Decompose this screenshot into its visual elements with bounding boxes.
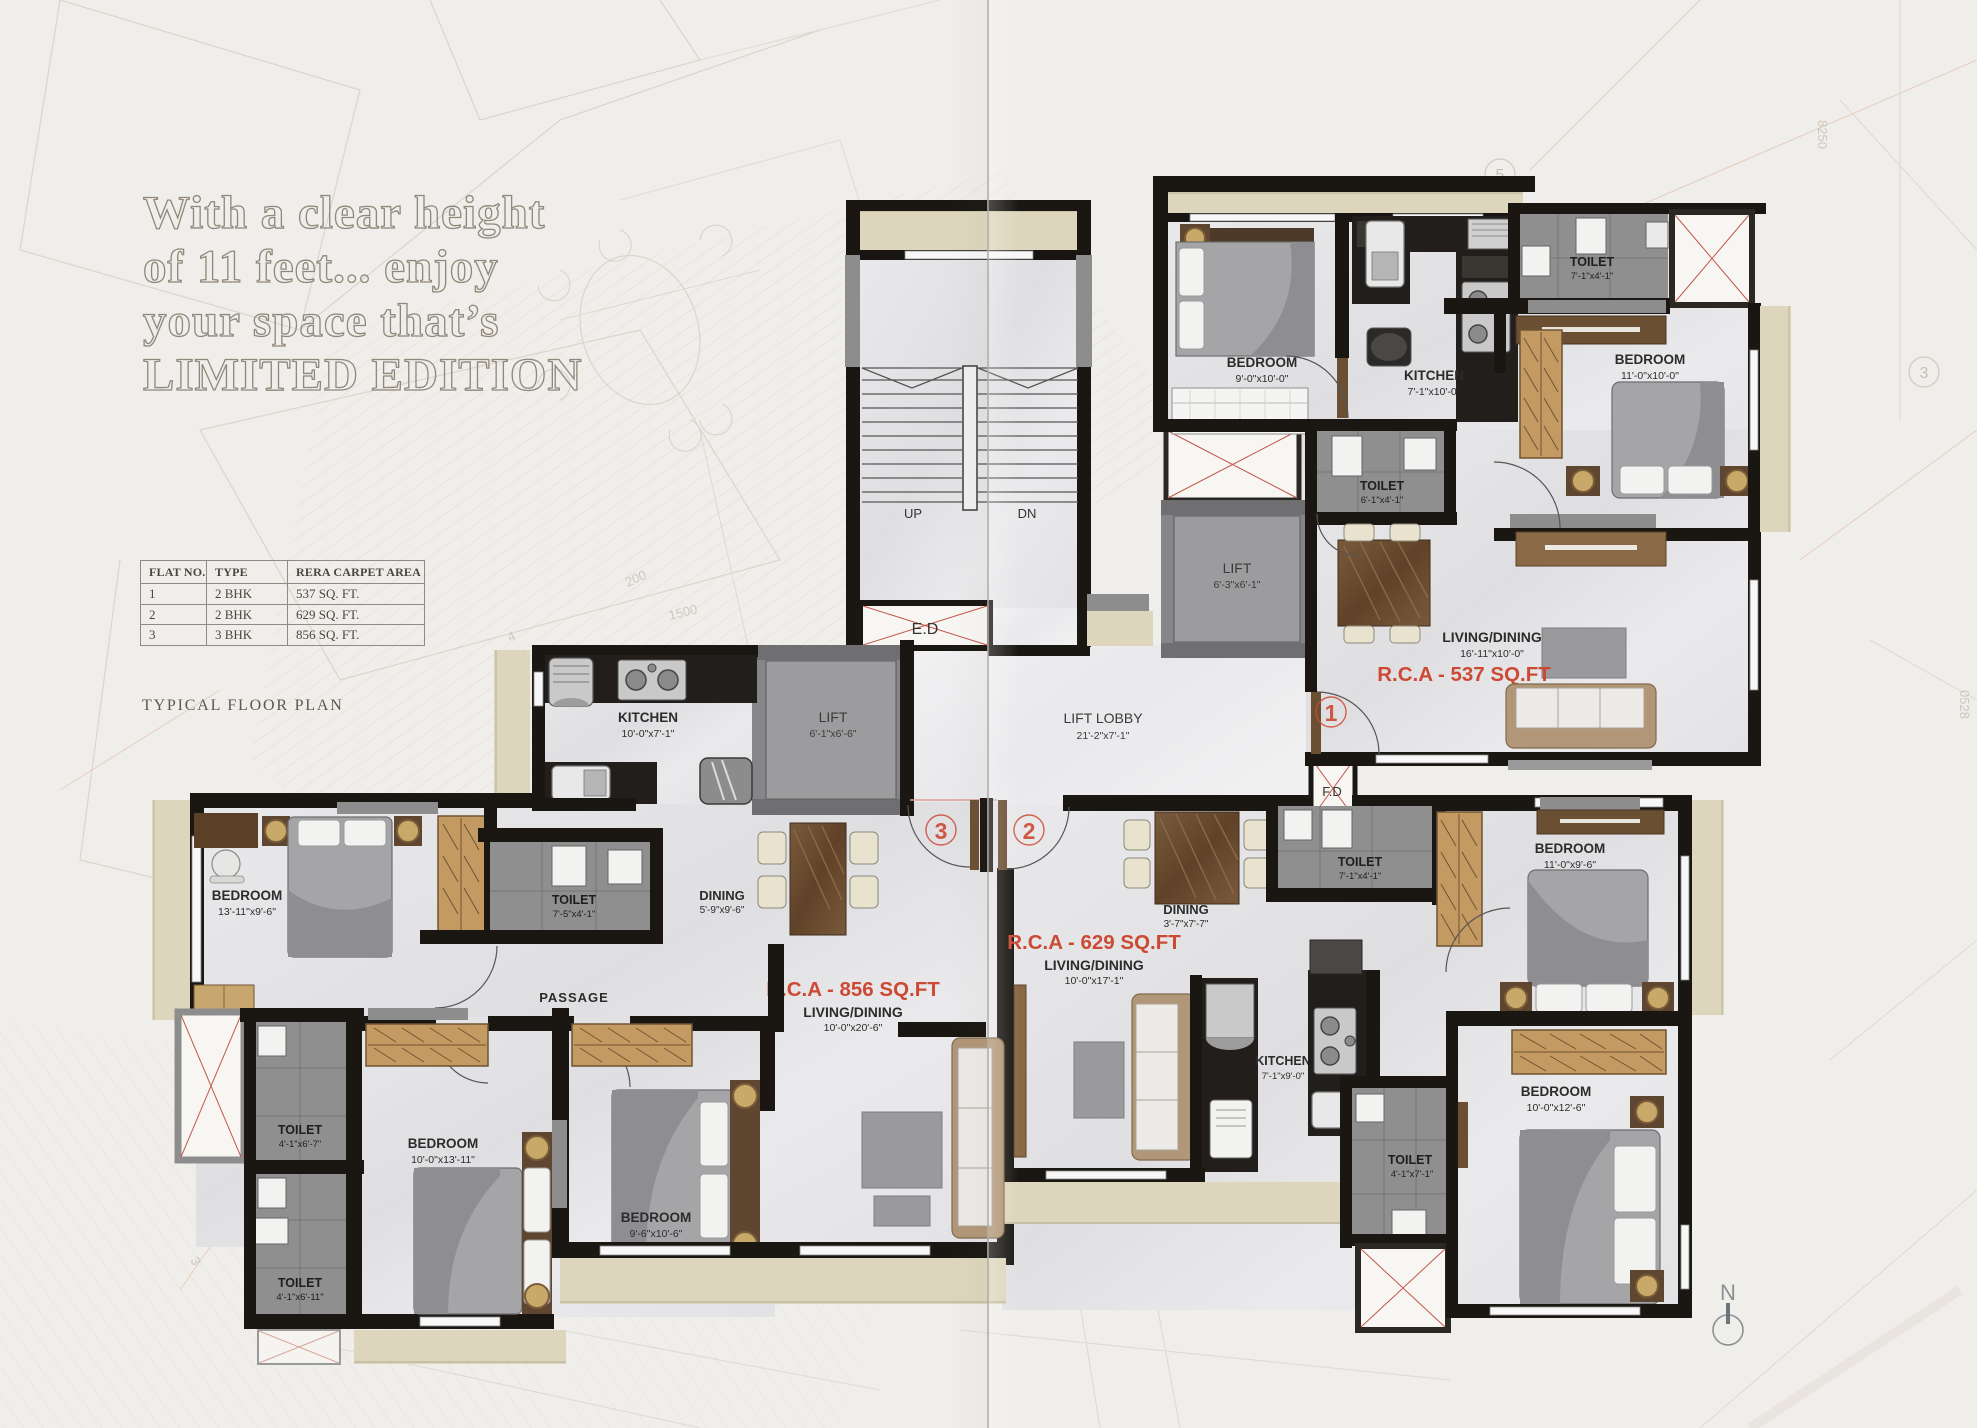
svg-text:KITCHEN: KITCHEN — [1255, 1054, 1311, 1068]
svg-text:13'-11"x9'-6": 13'-11"x9'-6" — [218, 906, 276, 918]
svg-text:E.D: E.D — [912, 621, 939, 638]
svg-text:4'-1"x6'-7": 4'-1"x6'-7" — [279, 1139, 322, 1150]
svg-text:10'-0"x7'-1": 10'-0"x7'-1" — [622, 728, 675, 740]
svg-text:6'-1"x6'-6": 6'-1"x6'-6" — [809, 728, 856, 740]
svg-text:TOILET: TOILET — [1360, 479, 1405, 493]
svg-text:DN: DN — [1018, 506, 1037, 521]
svg-text:2: 2 — [1023, 818, 1036, 844]
svg-text:1: 1 — [1325, 700, 1338, 726]
svg-text:R.C.A - 856 SQ.FT: R.C.A - 856 SQ.FT — [766, 978, 940, 1001]
svg-text:21'-2"x7'-1": 21'-2"x7'-1" — [1077, 730, 1130, 742]
svg-text:4'-1"x7'-1": 4'-1"x7'-1" — [1391, 1169, 1434, 1180]
svg-text:LIVING/DINING: LIVING/DINING — [1044, 957, 1144, 973]
svg-text:UP: UP — [904, 506, 922, 521]
svg-text:LIFT LOBBY: LIFT LOBBY — [1063, 710, 1143, 726]
svg-text:KITCHEN: KITCHEN — [1404, 368, 1464, 383]
svg-text:10'-0"x17'-1": 10'-0"x17'-1" — [1065, 975, 1124, 987]
svg-text:10'-0"x13'-11": 10'-0"x13'-11" — [411, 1154, 475, 1166]
svg-text:TOILET: TOILET — [1388, 1153, 1433, 1167]
svg-text:7'-1"x4'-1": 7'-1"x4'-1" — [1571, 271, 1614, 282]
svg-text:10'-0"x12'-6": 10'-0"x12'-6" — [1527, 1102, 1586, 1114]
svg-text:10'-0"x20'-6": 10'-0"x20'-6" — [824, 1022, 883, 1034]
svg-text:BEDROOM: BEDROOM — [1521, 1084, 1592, 1099]
svg-text:LIVING/DINING: LIVING/DINING — [803, 1004, 903, 1020]
svg-text:11'-0"x10'-0": 11'-0"x10'-0" — [1621, 370, 1679, 382]
svg-text:LIVING/DINING: LIVING/DINING — [1442, 629, 1542, 645]
svg-text:16'-11"x10'-0": 16'-11"x10'-0" — [1460, 648, 1524, 660]
svg-text:7'-1"x4'-1": 7'-1"x4'-1" — [1339, 871, 1382, 882]
svg-text:11'-0"x9'-6": 11'-0"x9'-6" — [1544, 859, 1596, 871]
svg-text:3: 3 — [935, 818, 948, 844]
svg-text:TOILET: TOILET — [1570, 255, 1615, 269]
svg-text:BEDROOM: BEDROOM — [1227, 355, 1298, 370]
svg-text:LIFT: LIFT — [1223, 560, 1252, 576]
svg-text:N: N — [1720, 1280, 1736, 1305]
svg-text:BEDROOM: BEDROOM — [1615, 352, 1686, 367]
svg-text:PASSAGE: PASSAGE — [539, 990, 609, 1005]
svg-text:9'-6"x10'-6": 9'-6"x10'-6" — [630, 1228, 683, 1240]
svg-text:TOILET: TOILET — [1338, 855, 1383, 869]
svg-text:DINING: DINING — [1163, 902, 1209, 917]
svg-text:7'-1"x10'-0": 7'-1"x10'-0" — [1408, 386, 1461, 398]
svg-text:TOILET: TOILET — [552, 893, 597, 907]
svg-text:TOILET: TOILET — [278, 1123, 323, 1137]
svg-text:6'-1"x4'-1": 6'-1"x4'-1" — [1361, 495, 1404, 506]
svg-text:6'-3"x6'-1": 6'-3"x6'-1" — [1213, 579, 1260, 591]
svg-text:LIFT: LIFT — [819, 709, 848, 725]
svg-text:7'-5"x4'-1": 7'-5"x4'-1" — [553, 909, 596, 920]
svg-text:TOILET: TOILET — [278, 1276, 323, 1290]
svg-text:F.D: F.D — [1322, 784, 1342, 799]
svg-text:9'-0"x10'-0": 9'-0"x10'-0" — [1236, 373, 1289, 385]
svg-text:R.C.A - 537 SQ.FT: R.C.A - 537 SQ.FT — [1377, 663, 1551, 686]
svg-text:3'-7"x7'-7": 3'-7"x7'-7" — [1164, 919, 1209, 930]
svg-text:BEDROOM: BEDROOM — [212, 888, 283, 903]
svg-text:R.C.A - 629 SQ.FT: R.C.A - 629 SQ.FT — [1007, 931, 1181, 954]
svg-text:KITCHEN: KITCHEN — [618, 710, 678, 725]
svg-text:DINING: DINING — [699, 888, 745, 903]
svg-text:BEDROOM: BEDROOM — [408, 1136, 479, 1151]
svg-text:7'-1"x9'-0": 7'-1"x9'-0" — [1262, 1071, 1305, 1082]
svg-text:4'-1"x6'-11": 4'-1"x6'-11" — [276, 1292, 323, 1303]
svg-text:5'-9"x9'-6": 5'-9"x9'-6" — [700, 905, 745, 916]
svg-text:BEDROOM: BEDROOM — [1535, 841, 1606, 856]
svg-text:BEDROOM: BEDROOM — [621, 1210, 692, 1225]
